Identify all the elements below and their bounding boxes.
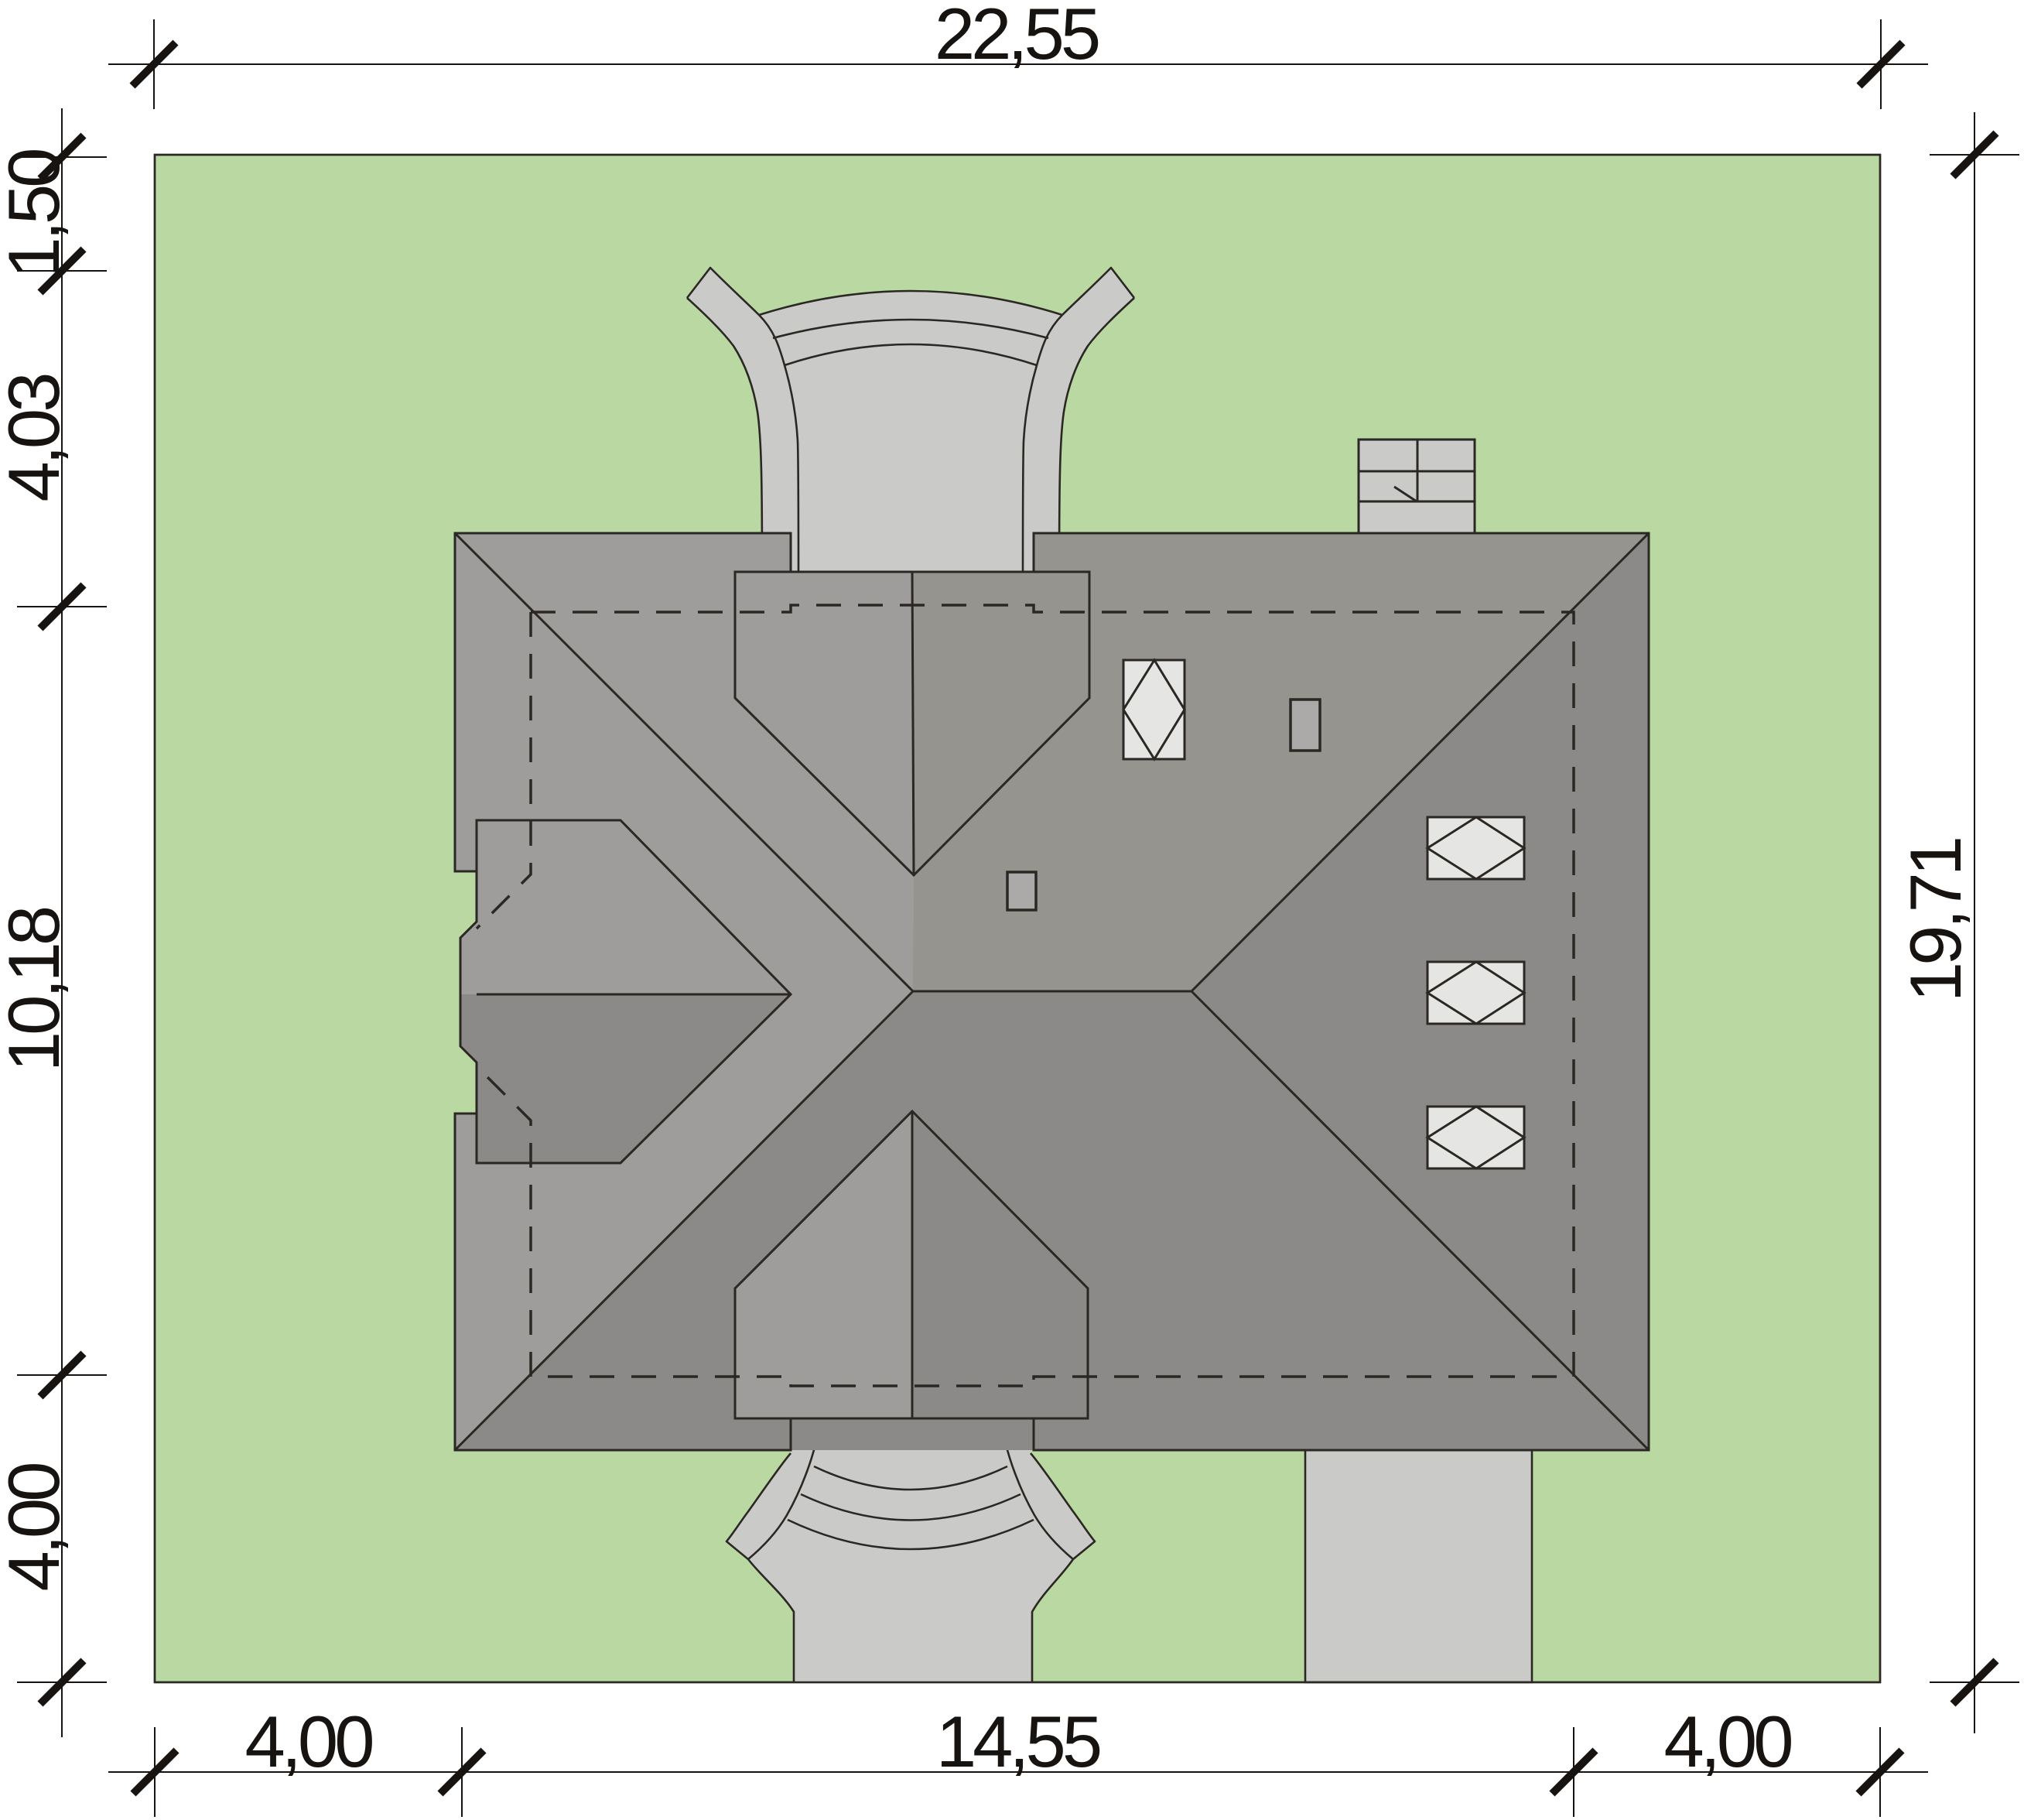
svg-text:1,50: 1,50 xyxy=(0,150,74,278)
svg-text:4,00: 4,00 xyxy=(245,1701,373,1782)
svg-text:19,71: 19,71 xyxy=(1895,839,1976,1002)
svg-text:14,55: 14,55 xyxy=(936,1701,1100,1782)
svg-text:10,18: 10,18 xyxy=(0,908,74,1072)
svg-text:4,03: 4,03 xyxy=(0,375,74,502)
svg-text:4,00: 4,00 xyxy=(1664,1701,1792,1782)
svg-text:22,55: 22,55 xyxy=(935,0,1099,74)
svg-text:4,00: 4,00 xyxy=(0,1464,74,1592)
